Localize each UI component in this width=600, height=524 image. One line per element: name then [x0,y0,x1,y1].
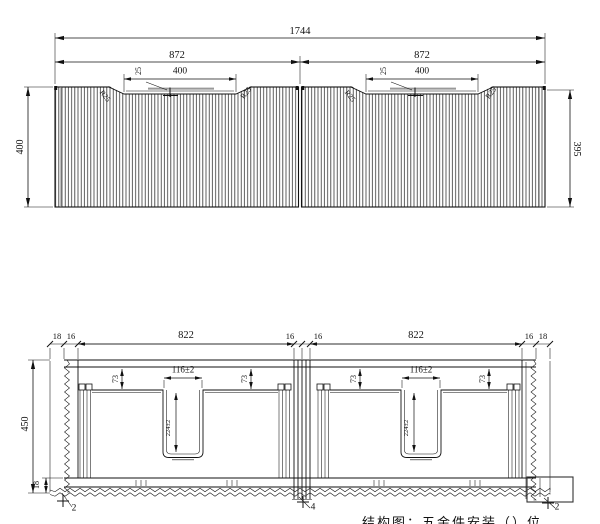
dim-bay-width-right: 822 [408,331,424,342]
dim-panel-thickness-3: 16 [314,332,323,341]
callout-label-center: 4 [311,503,316,513]
dim-height-right: 395 [571,142,581,157]
dim-overall-width: 1744 [290,27,311,38]
dim-slot-width-right: 116±2 [410,366,433,375]
dim-bottom-thickness: 18 [33,481,41,489]
dim-slot-depth-right: 224±2 [404,420,411,437]
dim-panel-thickness-4: 16 [525,332,534,341]
dim-recess-width-right: 400 [415,67,429,77]
dim-recess-depth-left: 25 [135,67,143,75]
technical-drawing-canvas: 1744 872 872 400 400 25 25 R25 R25 R25 R… [0,0,600,524]
callout-label-right: 2 [555,503,560,513]
drawing-caption: 结构图：五金件安装（）位 [322,516,582,524]
section-linework [28,341,573,509]
dim-half-width-right: 872 [414,51,430,62]
dim-divider-offset-4: 73 [479,375,487,383]
dim-side-overhang-left: 18 [53,332,62,341]
dim-recess-depth-right: 25 [380,67,388,75]
dim-divider-offset-1: 73 [112,375,120,383]
dim-height-left: 400 [16,140,26,155]
dim-side-overhang-right: 18 [539,332,548,341]
dim-recess-width-left: 400 [173,67,187,77]
dim-divider-offset-2: 73 [241,375,249,383]
dim-bay-width-left: 822 [178,331,194,342]
front-elevation-linework [24,33,574,207]
dim-slot-depth-left: 224±2 [166,420,173,437]
dim-panel-thickness-2: 16 [286,332,295,341]
dim-cabinet-height: 450 [21,417,31,432]
drawing-linework [0,0,600,524]
dim-divider-offset-3: 73 [350,375,358,383]
dim-slot-width-left: 116±2 [172,366,195,375]
callout-label-left: 2 [72,504,77,514]
dim-half-width-left: 872 [169,51,185,62]
dim-panel-thickness-1: 16 [67,332,76,341]
